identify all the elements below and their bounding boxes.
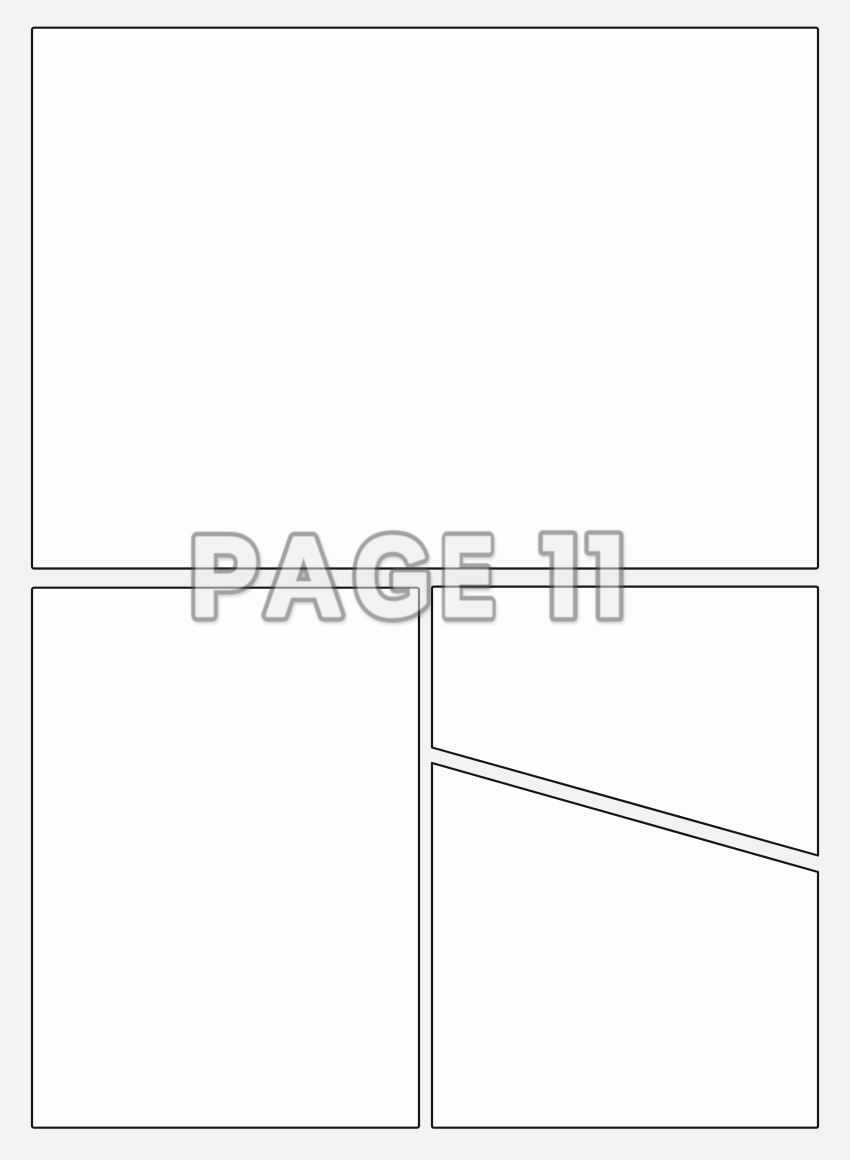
svg-text:P: P (191, 515, 258, 639)
svg-text:E: E (441, 516, 494, 639)
svg-text:A: A (265, 516, 342, 640)
svg-text:G: G (354, 516, 431, 640)
